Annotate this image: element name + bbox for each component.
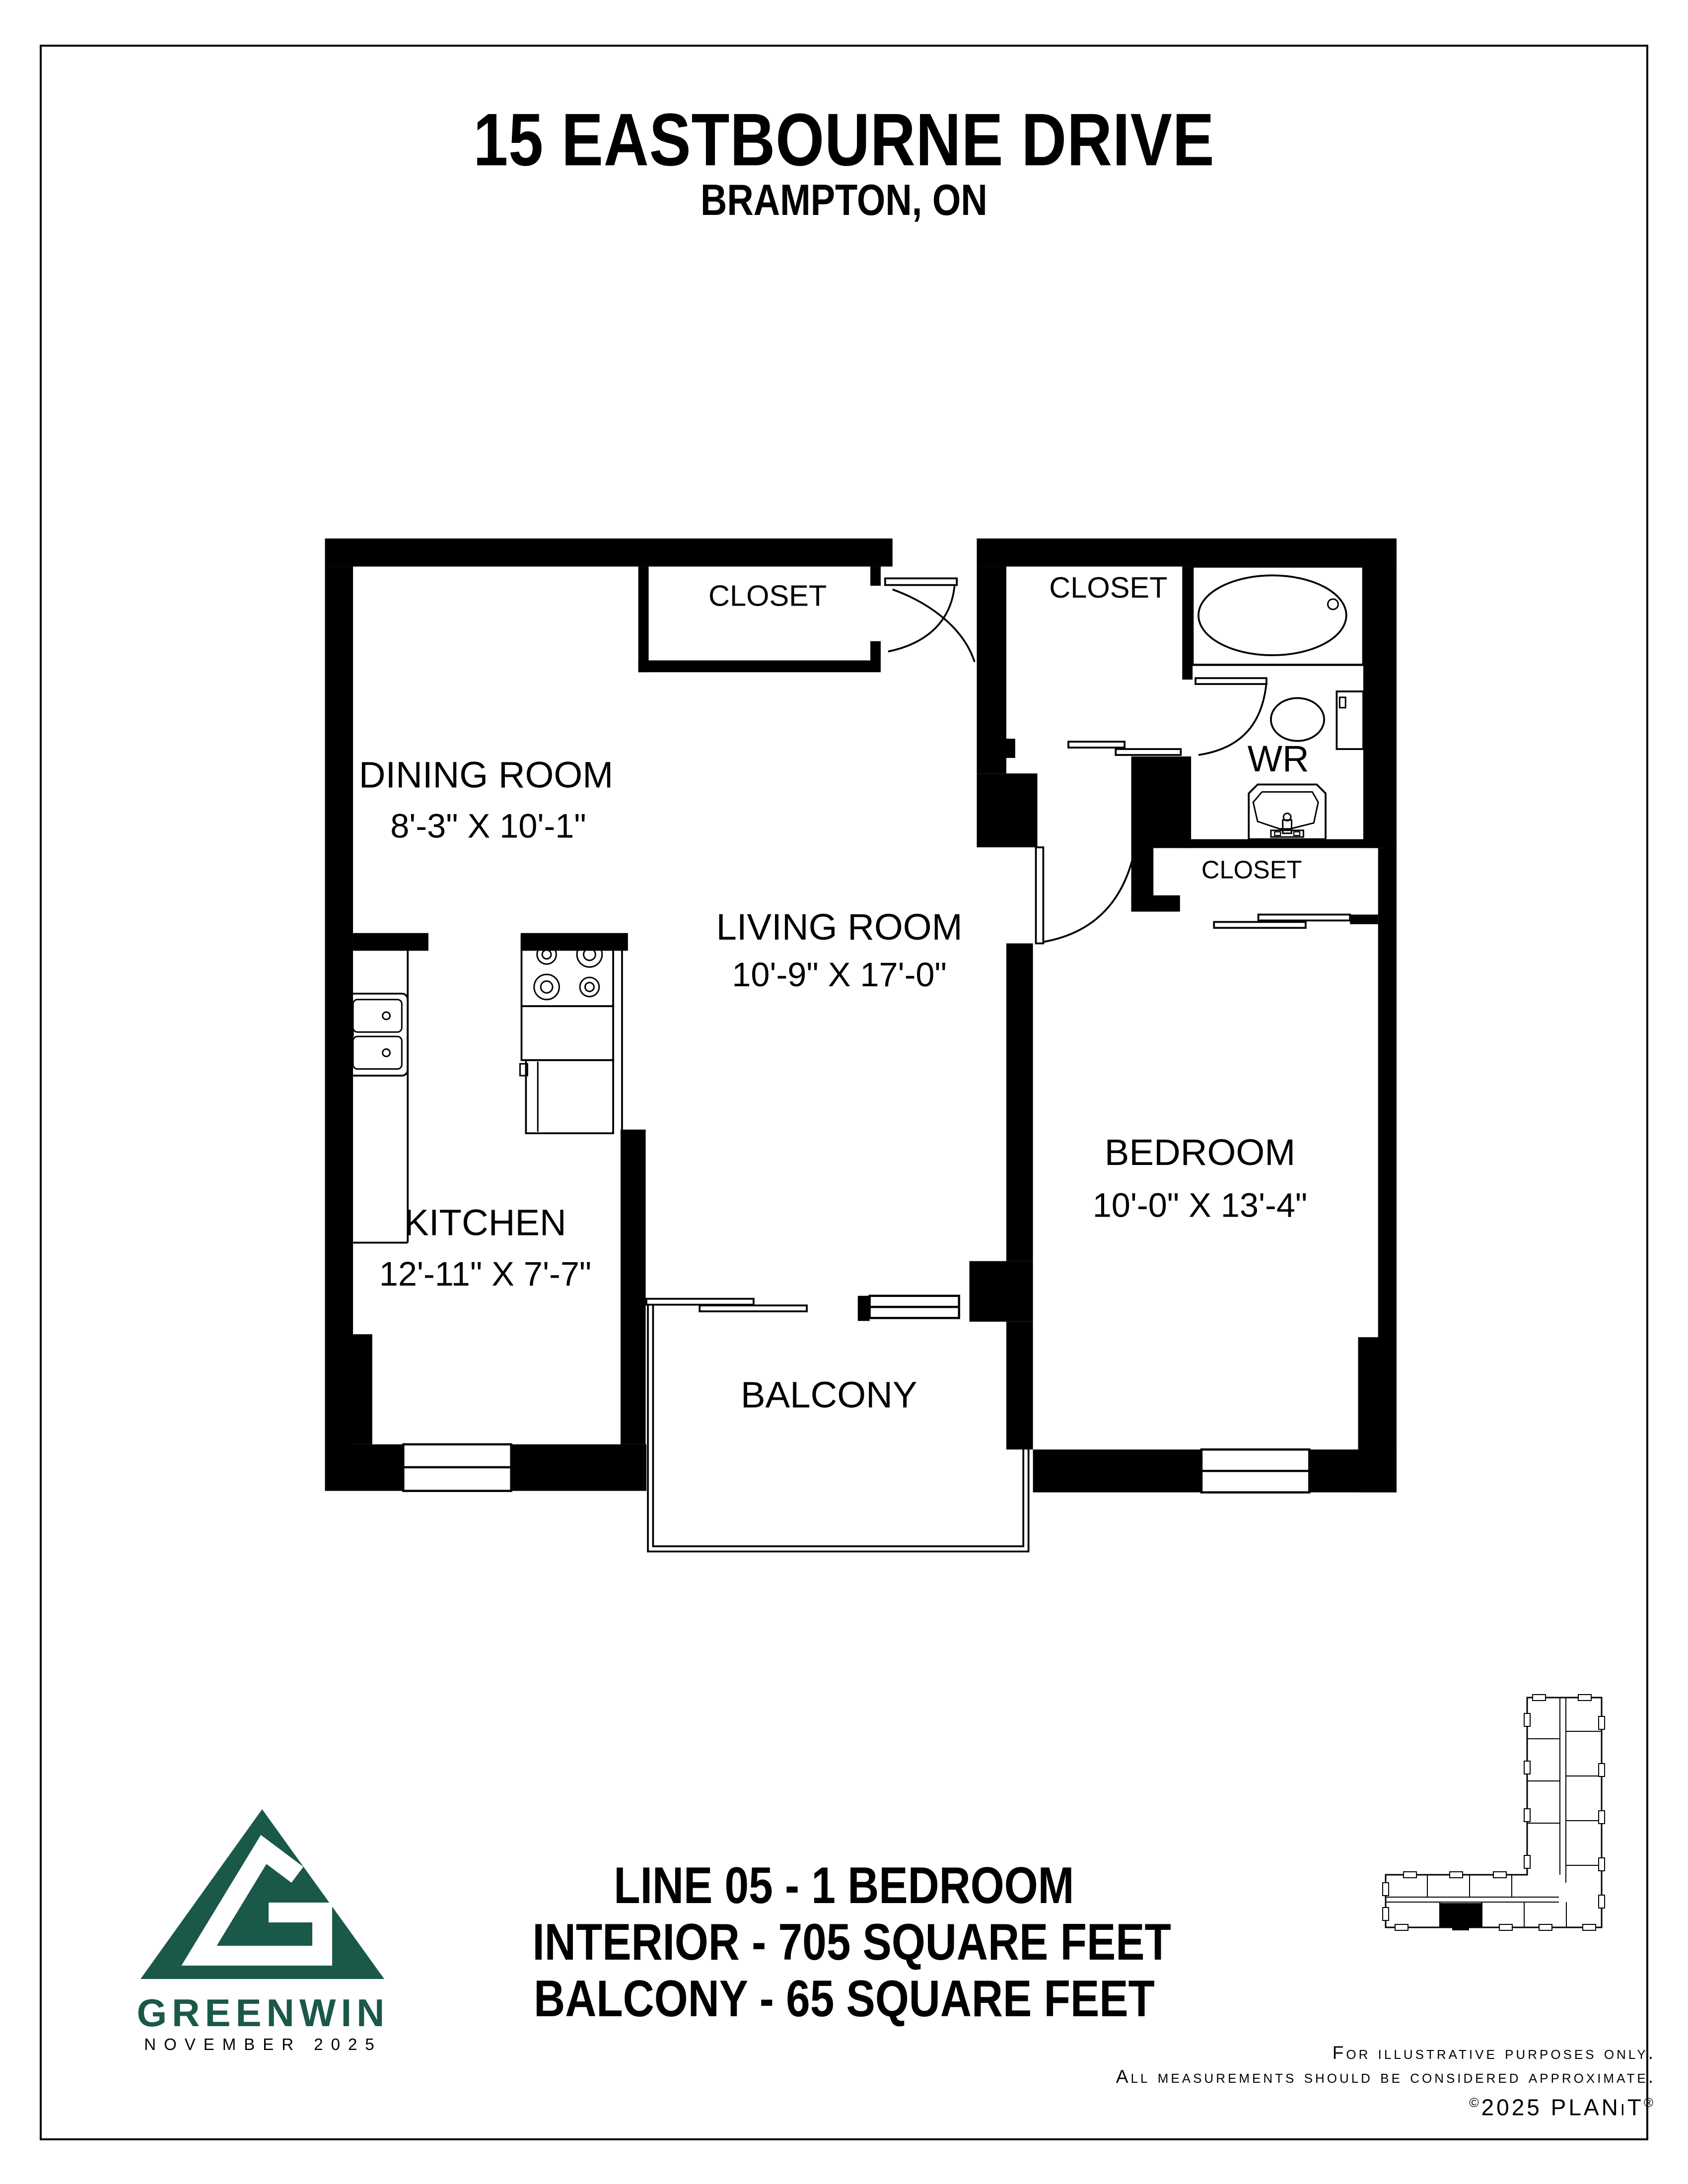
keyplan-window-ticks (1383, 1695, 1605, 1930)
bedroom-dims: 10'-0" X 13'-4" (1093, 1186, 1308, 1224)
living-room-dims: 10'-9" X 17'-0" (732, 955, 947, 994)
bedroom-window (1201, 1449, 1309, 1492)
wall-right-lower (1358, 1337, 1397, 1493)
page-title-row: 15 EASTBOURNE DRIVE (0, 97, 1688, 183)
summary-line-unit: LINE 05 - 1 BEDROOM (614, 1857, 1074, 1914)
kitchen-counter-edge (353, 951, 408, 1242)
wall-left (325, 566, 353, 1444)
bedroom-closet-label: CLOSET (1201, 856, 1302, 884)
bathroom-sink-icon (1249, 785, 1326, 839)
bed-closet-slider-b (1214, 922, 1306, 928)
wall-right-upper (1363, 539, 1397, 848)
balcony-label: BALCONY (741, 1374, 917, 1415)
legal-copyright: ©2025 PLANiT® (1116, 2091, 1656, 2119)
bedroom-door-leaf (1036, 847, 1044, 944)
wall-dining-closet-stub-top (870, 566, 881, 586)
kitchen-window (403, 1444, 511, 1491)
copyright-symbol: © (1469, 2095, 1481, 2110)
balcony-slider-b (700, 1305, 807, 1311)
wall-bedroom-door-jog (977, 773, 1037, 847)
plan-date: NOVEMBER 2025 (89, 2035, 437, 2054)
keyplan-unit-lines (1427, 1731, 1602, 1927)
wall-dining-closet-left (638, 566, 649, 672)
wall-dining-closet-bottom (638, 660, 881, 672)
hall-closet-label: CLOSET (1049, 571, 1167, 604)
unit-summary: LINE 05 - 1 BEDROOM INTERIOR - 705 SQUAR… (472, 1857, 1216, 2027)
kitchen-dims: 12'-11" X 7'-7" (379, 1255, 591, 1293)
legal-line-1: For illustrative purposes only. (1116, 2041, 1656, 2065)
dining-room-label: DINING ROOM (359, 754, 614, 796)
wall-top-right (977, 539, 1397, 567)
bed-closet-slider-a (1259, 915, 1350, 921)
wall-bedroom-bottom-a (1033, 1449, 1201, 1492)
bedroom-door-swing (1043, 849, 1135, 942)
wr-door-leaf (1196, 678, 1266, 684)
dining-room-dims: 8'-3" X 10'-1" (390, 807, 586, 845)
wall-kitchen-bottom-b (511, 1444, 646, 1491)
floorplan-drawing: DINING ROOM 8'-3" X 10'-1" LIVING ROOM 1… (288, 496, 1430, 1564)
keyplan-unit-tick (1452, 1924, 1469, 1930)
summary-line-balcony: BALCONY - 65 SQUARE FEET (534, 1971, 1155, 2027)
summary-line-interior: INTERIOR - 705 SQUARE FEET (533, 1914, 1171, 1971)
fridge-icon (520, 1060, 613, 1133)
legal-line-2: All measurements should be considered ap… (1116, 2065, 1656, 2089)
hall-closet-slider-b (1116, 749, 1181, 755)
keyplan-subject-unit (1440, 1903, 1482, 1927)
building-key-plan (1380, 1687, 1661, 2004)
legal-line-3: 2025 PLANiT (1481, 2094, 1644, 2120)
balcony-fixed-window (870, 1296, 959, 1318)
keyplan-outline (1386, 1698, 1602, 1927)
washroom-label: WR (1248, 738, 1309, 779)
hall-closet-slider-a (1068, 742, 1125, 748)
wall-left-pier (325, 1334, 372, 1444)
entry-door-swing (893, 590, 975, 662)
wall-hall-closet-nub (1006, 739, 1015, 758)
kitchen-counter (521, 1006, 613, 1060)
page-subtitle: BRAMPTON, ON (701, 175, 987, 225)
greenwin-wordmark: GREENWIN (89, 1990, 437, 2036)
wall-vestibule (977, 566, 1006, 773)
wall-bed-closet-right-stub (1350, 915, 1378, 924)
wall-dining-closet-stub-bottom (870, 641, 881, 661)
bedroom-label: BEDROOM (1105, 1132, 1295, 1173)
balcony-slider-a (646, 1299, 754, 1305)
balcony-railing (648, 1305, 1029, 1552)
wall-top-left (325, 539, 893, 567)
dining-closet-door-leaf (885, 578, 957, 585)
wall-kitchen-right (621, 1130, 646, 1444)
wall-wr-corner-block (1131, 756, 1192, 848)
wall-balcony-pier (970, 1261, 1033, 1322)
kitchen-fixtures (341, 935, 622, 1242)
wall-wr-left-upper (1182, 566, 1193, 680)
registered-symbol: ® (1644, 2095, 1656, 2110)
dining-closet-label: CLOSET (708, 579, 827, 612)
legal-disclaimer: For illustrative purposes only. All meas… (1116, 2041, 1656, 2119)
kitchen-label: KITCHEN (404, 1202, 566, 1243)
page-subtitle-row: BRAMPTON, ON (0, 175, 1688, 225)
washroom-fixtures (1193, 566, 1363, 839)
wall-living-bedroom-upper (1006, 944, 1033, 1261)
wall-bed-closet-stub (1131, 895, 1180, 912)
page-title: 15 EASTBOURNE DRIVE (473, 97, 1214, 183)
wall-dining-kitchen-a (353, 933, 428, 951)
floorplan-page: 15 EASTBOURNE DRIVE BRAMPTON, ON (0, 0, 1688, 2184)
wall-balcony-nub (858, 1296, 870, 1321)
wall-right-mid (1378, 848, 1397, 1337)
living-room-label: LIVING ROOM (716, 906, 962, 948)
bathtub-icon (1193, 566, 1363, 665)
wall-kitchen-bottom-a (325, 1444, 404, 1491)
greenwin-logo-icon (141, 1809, 384, 1979)
